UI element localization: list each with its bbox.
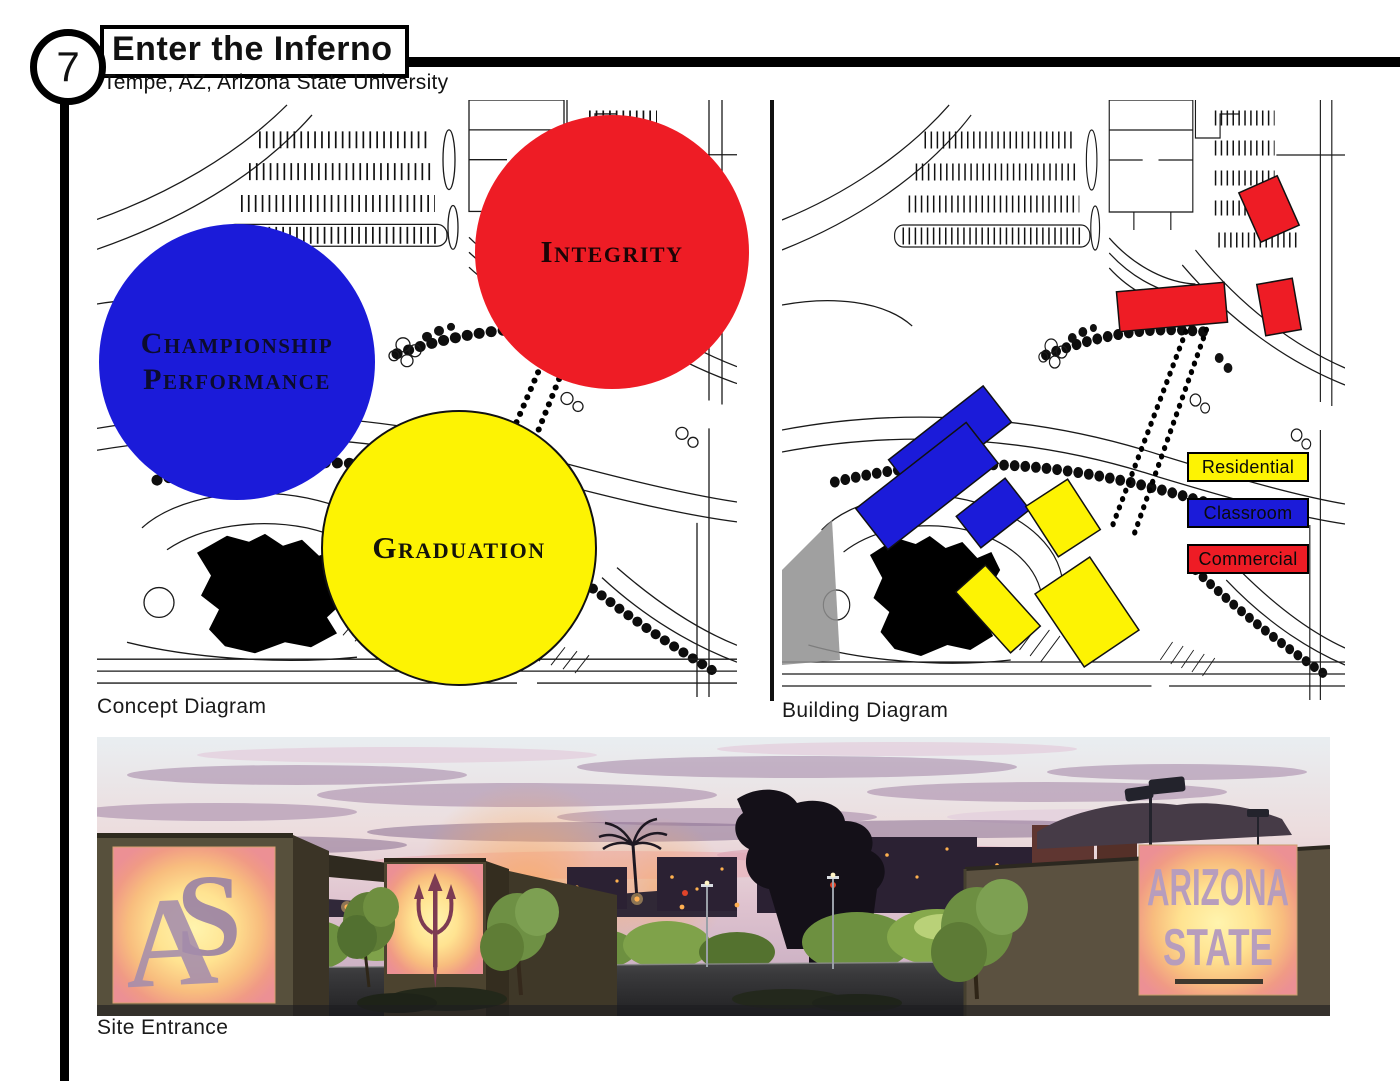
plaza-hatch-area: [782, 520, 840, 665]
page-subtitle: Tempe, AZ, Arizona State University: [103, 71, 448, 95]
legend-item-classroom: Classroom: [1187, 498, 1309, 528]
concept-diagram-panel: Championship Performance Integrity Gradu…: [97, 100, 753, 697]
site-entrance-rendering: S A: [97, 737, 1330, 1016]
building-legend: Residential Classroom Commercial: [1187, 452, 1309, 590]
page-number-badge: 7: [30, 29, 106, 105]
concept-circle-championship-performance: Championship Performance: [99, 224, 375, 500]
legend-label: Commercial: [1198, 549, 1297, 570]
sign-underline: [1175, 979, 1263, 984]
building-diagram-caption: Building Diagram: [782, 699, 948, 723]
concept-circle-label-line: Performance: [143, 362, 331, 398]
concept-circle-graduation: Graduation: [321, 410, 597, 686]
site-entrance-caption: Site Entrance: [97, 1016, 228, 1040]
sign-line-state: STATE: [1163, 919, 1273, 977]
legend-item-residential: Residential: [1187, 452, 1309, 482]
legend-label: Residential: [1202, 457, 1294, 478]
classroom-buildings: [856, 386, 1030, 550]
concept-circle-label-line: Graduation: [372, 529, 545, 566]
building-overlays: [782, 100, 1345, 700]
concept-diagram-caption: Concept Diagram: [97, 695, 266, 719]
panel-divider-rule: [770, 100, 774, 701]
left-border-rule: [60, 92, 69, 1081]
presentation-board: 7 Enter the Inferno Tempe, AZ, Arizona S…: [0, 0, 1400, 1081]
page-number: 7: [56, 43, 79, 91]
legend-item-commercial: Commercial: [1187, 544, 1309, 574]
legend-label: Classroom: [1204, 503, 1293, 524]
monogram-letter-a: A: [121, 869, 221, 1016]
commercial-buildings: [1116, 176, 1301, 336]
sign-line-arizona: ARIZONA: [1147, 859, 1289, 917]
concept-circle-label-line: Integrity: [541, 233, 684, 270]
right-gateway-wall: ARIZONA STATE: [931, 845, 1330, 1016]
concept-circle-integrity: Integrity: [475, 115, 749, 389]
building-diagram-panel: Residential Classroom Commercial: [782, 100, 1345, 700]
site-entrance-scene: S A: [97, 737, 1330, 1016]
foreground-shadow: [97, 1005, 1330, 1016]
concept-circle-label-line: Championship: [141, 326, 334, 362]
